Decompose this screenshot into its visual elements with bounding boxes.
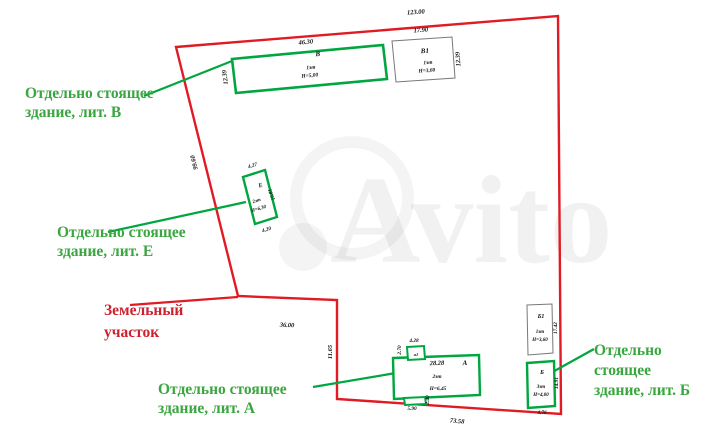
dim-a-porch-top-w: 4.28 bbox=[408, 338, 419, 344]
building-b1-floors: 1эт bbox=[536, 330, 545, 335]
dim-b-bottom: 4.76 bbox=[536, 410, 547, 416]
label-plot-line2: участок bbox=[104, 324, 159, 341]
building-v1-letter: В1 bbox=[420, 47, 430, 56]
site-plan-drawing: Avito 123.00 99.60 73.58 36.00 11.65 46.… bbox=[0, 0, 720, 440]
dim-v-side: 12.39 bbox=[221, 69, 230, 85]
dim-e-width: 4.27 bbox=[246, 162, 258, 171]
label-building-v: Отдельно стоящее здание, лит. В bbox=[25, 85, 154, 121]
dim-b-side: 14.91 bbox=[554, 377, 560, 389]
building-a-floors: 2эт bbox=[431, 374, 441, 380]
site-plan-page: Avito 123.00 99.60 73.58 36.00 11.65 46.… bbox=[0, 0, 720, 440]
dim-plot-left: 99.60 bbox=[189, 154, 200, 171]
label-building-b: Отдельно стоящее здание, лит. Б bbox=[594, 342, 690, 399]
dim-a-porch-bottom-h: 2.40 bbox=[425, 395, 431, 406]
building-v1-height: Н=3,60 bbox=[417, 67, 435, 74]
dim-a-porch-bottom-w: 5.90 bbox=[407, 406, 417, 412]
label-building-e-line2: здание, лит. Е bbox=[57, 243, 153, 260]
label-building-e: Отдельно стоящее здание, лит. Е bbox=[57, 224, 186, 260]
label-building-b-line2: стоящее bbox=[594, 362, 651, 379]
leader-building-b bbox=[549, 349, 594, 374]
dim-v1-width: 17.90 bbox=[413, 26, 429, 34]
label-plot-line1: Земельный bbox=[104, 302, 183, 319]
label-building-v-line2: здание, лит. В bbox=[25, 104, 121, 121]
dim-plot-bottom: 73.58 bbox=[450, 417, 466, 425]
watermark-circle-small bbox=[279, 223, 327, 271]
label-building-a-line2: здание, лит. А bbox=[158, 400, 256, 417]
dim-e-bottom: 4.20 bbox=[260, 226, 272, 235]
label-building-b-line3: здание, лит. Б bbox=[594, 382, 690, 399]
watermark-text: Avito bbox=[330, 152, 612, 290]
watermark: Avito bbox=[279, 142, 612, 290]
building-b-floors: 3эт bbox=[536, 385, 546, 390]
dim-plot-top: 123.00 bbox=[407, 8, 426, 16]
leader-building-a bbox=[313, 373, 396, 387]
building-a-height: Н=6,45 bbox=[429, 386, 447, 392]
dim-a-porch-top-h: 2.70 bbox=[397, 345, 403, 356]
building-v-floors: 1эт bbox=[306, 65, 316, 72]
label-plot: Земельный участок bbox=[104, 302, 183, 341]
label-building-b-line1: Отдельно bbox=[594, 342, 662, 359]
building-b1-height: Н=3,60 bbox=[531, 338, 548, 343]
label-building-a: Отдельно стоящее здание, лит. А bbox=[158, 381, 287, 417]
dim-b1-side: 17.42 bbox=[553, 322, 559, 334]
building-v-letter: В bbox=[314, 50, 321, 58]
building-b1-letter: Б1 bbox=[537, 314, 545, 320]
label-building-e-line1: Отдельно стоящее bbox=[57, 224, 186, 241]
dim-a-width: 28.28 bbox=[429, 360, 446, 368]
building-b-letter: Б bbox=[539, 370, 544, 376]
dim-v-width: 46.30 bbox=[297, 38, 314, 46]
building-a-porch-label: а1 bbox=[414, 352, 419, 357]
label-building-a-line1: Отдельно стоящее bbox=[158, 381, 287, 398]
dim-plot-mid-v: 11.65 bbox=[327, 344, 334, 359]
building-v1-floors: 1эт bbox=[423, 60, 432, 67]
label-building-v-line1: Отдельно стоящее bbox=[25, 85, 154, 102]
dim-v1-side: 12.39 bbox=[454, 51, 462, 67]
building-a-porch-bottom bbox=[404, 397, 426, 405]
dim-plot-mid-h: 36.00 bbox=[279, 322, 296, 330]
building-b-height: Н=4,00 bbox=[532, 393, 549, 398]
building-a-letter: А bbox=[461, 359, 467, 367]
